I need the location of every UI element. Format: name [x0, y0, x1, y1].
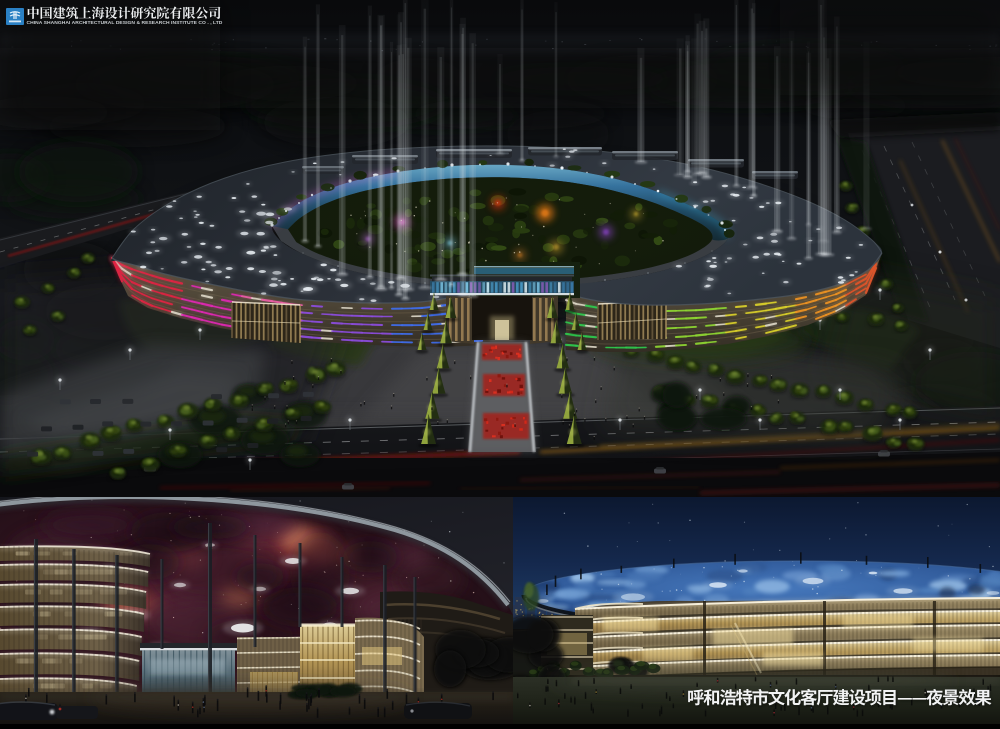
- svg-text:CHINA SHANGHAI ARCHITECTURAL D: CHINA SHANGHAI ARCHITECTURAL DESIGN & RE…: [27, 20, 223, 26]
